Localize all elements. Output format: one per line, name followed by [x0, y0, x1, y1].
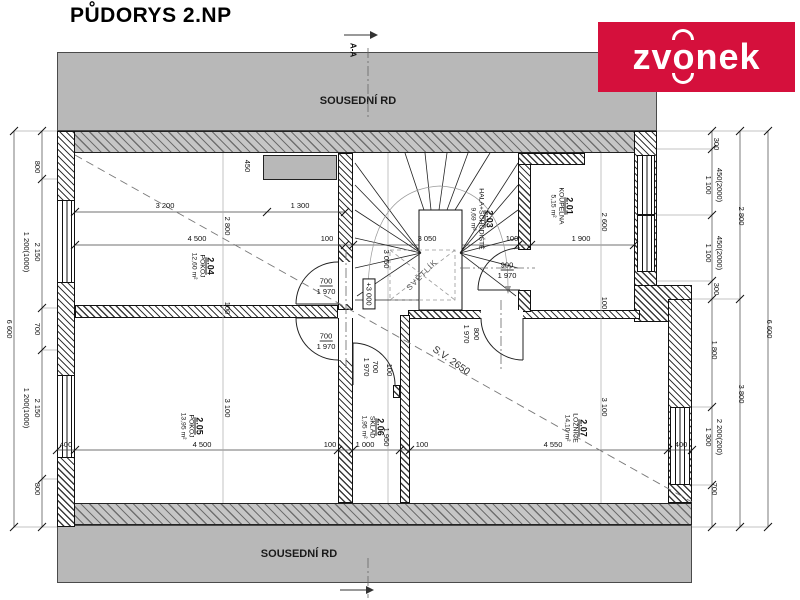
dim-label: 1 900	[572, 235, 591, 243]
extension-lines	[14, 131, 768, 527]
dim-label: 2 800	[223, 217, 231, 236]
dim-label: 100	[324, 441, 337, 449]
room-label-2-03: 2.03 HALA+SCHODIŠTĚ 9,69 m²	[470, 188, 495, 249]
chain-dim-label: 3 800	[737, 385, 745, 404]
chain-dim-label: 700	[710, 483, 718, 496]
section-arrowhead-bottom	[366, 586, 374, 594]
dim-label: 450	[243, 160, 251, 173]
room-label-2-04: 2.04 POKOJ 12,60 m²	[191, 253, 216, 280]
chain-dim-label: 2 200(200)	[715, 419, 723, 455]
dim-label: 100	[321, 235, 334, 243]
section-arrowhead-top	[370, 31, 378, 39]
dim-label: 400	[675, 441, 688, 449]
dimension-lines	[14, 131, 768, 527]
door-dim-label: 1 970	[498, 272, 517, 280]
room-label-2-05: 2.05 POKOJ 13,95 m²	[180, 413, 205, 440]
section-label: A-A	[349, 43, 358, 57]
floorplan-drawing: PŮDORYS 2.NP zvonek SOUSEDNÍ RD SOUSEDNÍ…	[0, 0, 800, 600]
page-title: PŮDORYS 2.NP	[70, 4, 232, 28]
door-dim-label: 1 970	[362, 358, 370, 377]
chain-dim-label: 800	[33, 161, 41, 174]
door-dim-label: 1 970	[317, 288, 336, 296]
chain-dim-label: 1 100	[704, 244, 712, 263]
level-marker: +3 000	[363, 278, 376, 309]
dim-label: 1 950	[382, 428, 390, 447]
chain-dim-label: 6 600	[5, 320, 13, 339]
dim-label: 100	[600, 297, 608, 310]
chain-dim-label: 800	[33, 483, 41, 496]
door-swings	[296, 248, 523, 385]
company-logo: zvonek	[598, 22, 795, 92]
chain-dim-label: 2 150	[33, 243, 41, 262]
dim-label: 3 050	[418, 235, 437, 243]
door-dim-label: 1 970	[317, 343, 336, 351]
dim-label: 4 500	[193, 441, 212, 449]
dimension-ticks	[10, 127, 772, 531]
dim-label: 1 000	[356, 441, 375, 449]
dim-label: 100	[385, 364, 393, 377]
dim-label: 4 500	[188, 235, 207, 243]
door-dim-label: 1 970	[462, 325, 470, 344]
dim-label: 100	[506, 235, 519, 243]
dim-label: 3 100	[223, 399, 231, 418]
chain-dim-label: 2 800	[737, 207, 745, 226]
door-dim-label: 700	[371, 361, 379, 374]
chain-dim-label: 700	[33, 323, 41, 336]
chain-dim-label: 1 200(1000)	[22, 232, 30, 272]
door-dim-label: 700	[320, 278, 333, 287]
chain-dim-label: 6 600	[765, 320, 773, 339]
chain-dim-label: 300	[712, 283, 720, 296]
logo-text: zvonek	[632, 39, 760, 75]
door-dim-label: 700	[320, 333, 333, 342]
chain-dim-label: 2 150	[33, 399, 41, 418]
chain-dim-label: 1 100	[704, 176, 712, 195]
dim-label: 3 050	[382, 250, 390, 269]
dim-label: 2 600	[600, 213, 608, 232]
logo-bell-icon: o	[672, 39, 695, 75]
chain-dim-label: 450(2000)	[715, 236, 723, 270]
stair-landing	[419, 210, 462, 310]
dim-label: 3 200	[156, 202, 175, 210]
chain-dim-label: 1 300	[704, 428, 712, 447]
door-dim-label: 800	[472, 328, 480, 341]
dim-label: 3 100	[600, 398, 608, 417]
chain-dim-label: 1 800	[710, 341, 718, 360]
dim-label: 4 550	[544, 441, 563, 449]
door-dim-label: 900	[501, 262, 514, 271]
dim-label: 100	[416, 441, 429, 449]
chain-dim-label: 1 200(1000)	[22, 388, 30, 428]
construction-lines	[223, 153, 601, 503]
dim-label: 1 300	[291, 202, 310, 210]
dim-label: 400	[60, 441, 73, 449]
dim-label: 100	[223, 302, 231, 315]
chain-dim-label: 300	[712, 138, 720, 151]
chain-dim-label: 450(2000)	[715, 168, 723, 202]
room-label-2-07: 2.07 LOŽNICE 14,10 m²	[564, 413, 589, 442]
room-label-2-01: 2.01 KOUPELNA 5,15 m²	[550, 187, 575, 224]
